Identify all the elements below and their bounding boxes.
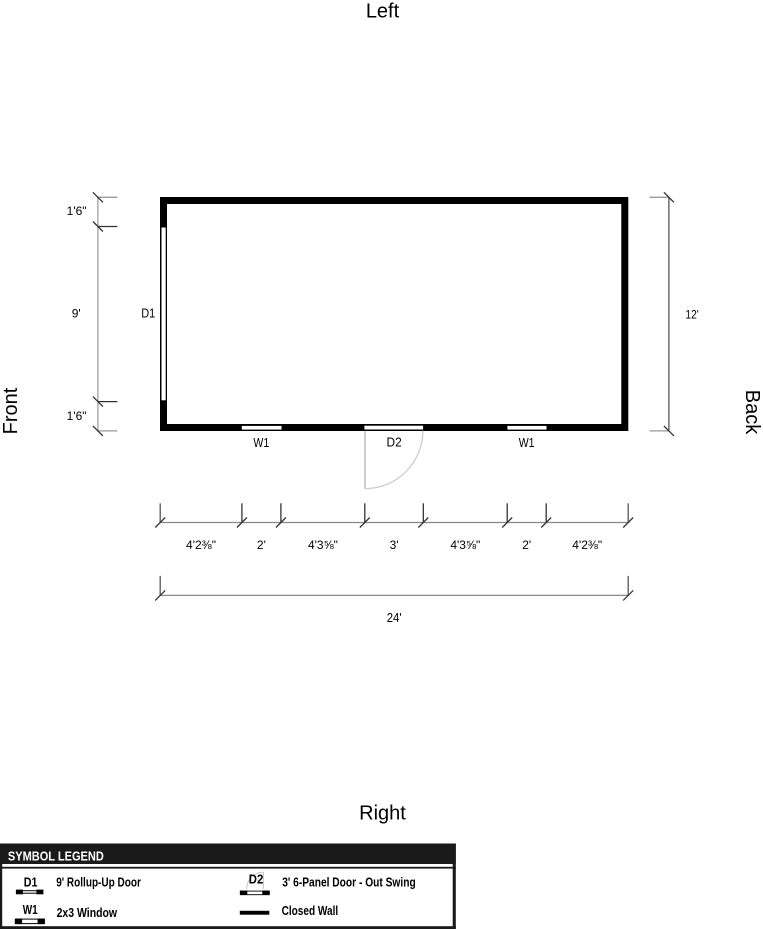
svg-text:3' 6-Panel Door - Out Swing: 3' 6-Panel Door - Out Swing <box>282 876 416 890</box>
svg-text:Closed Wall: Closed Wall <box>282 904 339 918</box>
svg-text:Front: Front <box>0 387 22 434</box>
svg-text:W1: W1 <box>23 902 38 917</box>
svg-text:D1: D1 <box>24 875 38 890</box>
svg-text:4'2⅜": 4'2⅜" <box>186 538 216 552</box>
svg-text:4'2⅜": 4'2⅜" <box>572 538 602 552</box>
svg-text:9': 9' <box>72 306 81 320</box>
svg-text:4'3⅝": 4'3⅝" <box>308 538 338 552</box>
svg-text:4'3⅝": 4'3⅝" <box>450 538 480 552</box>
svg-text:24': 24' <box>387 611 402 625</box>
svg-text:D1: D1 <box>141 305 155 320</box>
svg-text:1'6": 1'6" <box>67 204 87 218</box>
svg-text:SYMBOL LEGEND: SYMBOL LEGEND <box>8 849 104 864</box>
svg-text:D2: D2 <box>249 872 264 887</box>
svg-text:9' Rollup-Up Door: 9' Rollup-Up Door <box>56 875 141 889</box>
svg-text:D2: D2 <box>387 434 402 449</box>
svg-text:2': 2' <box>522 538 531 552</box>
svg-text:Left: Left <box>366 0 400 22</box>
svg-text:W1: W1 <box>519 435 535 450</box>
svg-text:Right: Right <box>359 802 406 824</box>
svg-text:3': 3' <box>390 538 399 552</box>
svg-text:W1: W1 <box>253 435 269 450</box>
svg-text:1'6": 1'6" <box>67 409 87 423</box>
svg-text:Back: Back <box>741 390 763 435</box>
svg-text:2': 2' <box>257 538 266 552</box>
svg-text:2x3 Window: 2x3 Window <box>57 906 118 920</box>
svg-text:12': 12' <box>685 308 698 322</box>
